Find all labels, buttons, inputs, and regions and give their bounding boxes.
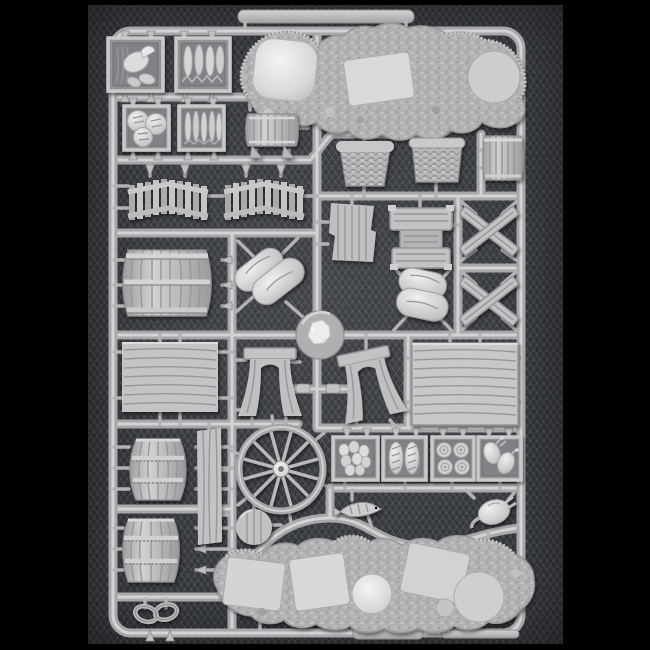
- upright-barrel-2: [123, 520, 180, 582]
- flat-slab: [222, 557, 285, 612]
- crate-of-dried-fish: [179, 106, 224, 150]
- round-plateau: [468, 51, 520, 103]
- flat-slab: [343, 52, 415, 107]
- wagon-wheel: [239, 427, 323, 511]
- crate-of-meat: [108, 38, 163, 91]
- crate-of-baguette-loaves: [383, 437, 426, 480]
- sprue-photo: [0, 0, 650, 650]
- injection-hub: [296, 311, 344, 359]
- top-label-tab: [238, 10, 414, 23]
- long-plank-board: [197, 428, 222, 545]
- fence-section-2: [224, 179, 304, 220]
- round-plateau: [352, 574, 392, 614]
- bottom-label-tab-2: [441, 630, 519, 638]
- plank-panel-left: [122, 342, 218, 412]
- cart-end-arch-2: [331, 344, 408, 424]
- crate-of-eggs: [333, 437, 378, 480]
- round-plateau: [454, 572, 504, 622]
- cart-end-arch-1: [238, 348, 302, 416]
- x-frame-barricade-2: [459, 276, 519, 326]
- upright-barrel-1: [130, 440, 186, 500]
- flat-slab: [289, 552, 351, 611]
- fence-section-1: [128, 179, 208, 220]
- rough-plank-pile: [329, 203, 376, 262]
- round-wooden-lid: [236, 509, 272, 545]
- sprue-drawing: [0, 0, 650, 650]
- crate-of-bread-loaves: [124, 106, 169, 150]
- crate-of-fish: [176, 38, 230, 91]
- large-banded-cask: [123, 250, 212, 316]
- wicker-basket-1: [336, 141, 394, 186]
- x-frame-barricade-1: [459, 206, 519, 256]
- plank-panel-right: [412, 343, 518, 425]
- plucked-fowl: [472, 496, 516, 529]
- crate-of-rope-coils: [432, 437, 474, 480]
- smooth-plateau: [251, 37, 319, 103]
- sack-pile-large: [230, 237, 310, 314]
- slatted-bucket-cask: [483, 135, 524, 181]
- crate-of-poultry: [478, 436, 521, 480]
- double-ring-shackle-link: [133, 602, 178, 624]
- banded-plank-stack: [388, 205, 454, 270]
- wicker-basket-2: [409, 138, 465, 182]
